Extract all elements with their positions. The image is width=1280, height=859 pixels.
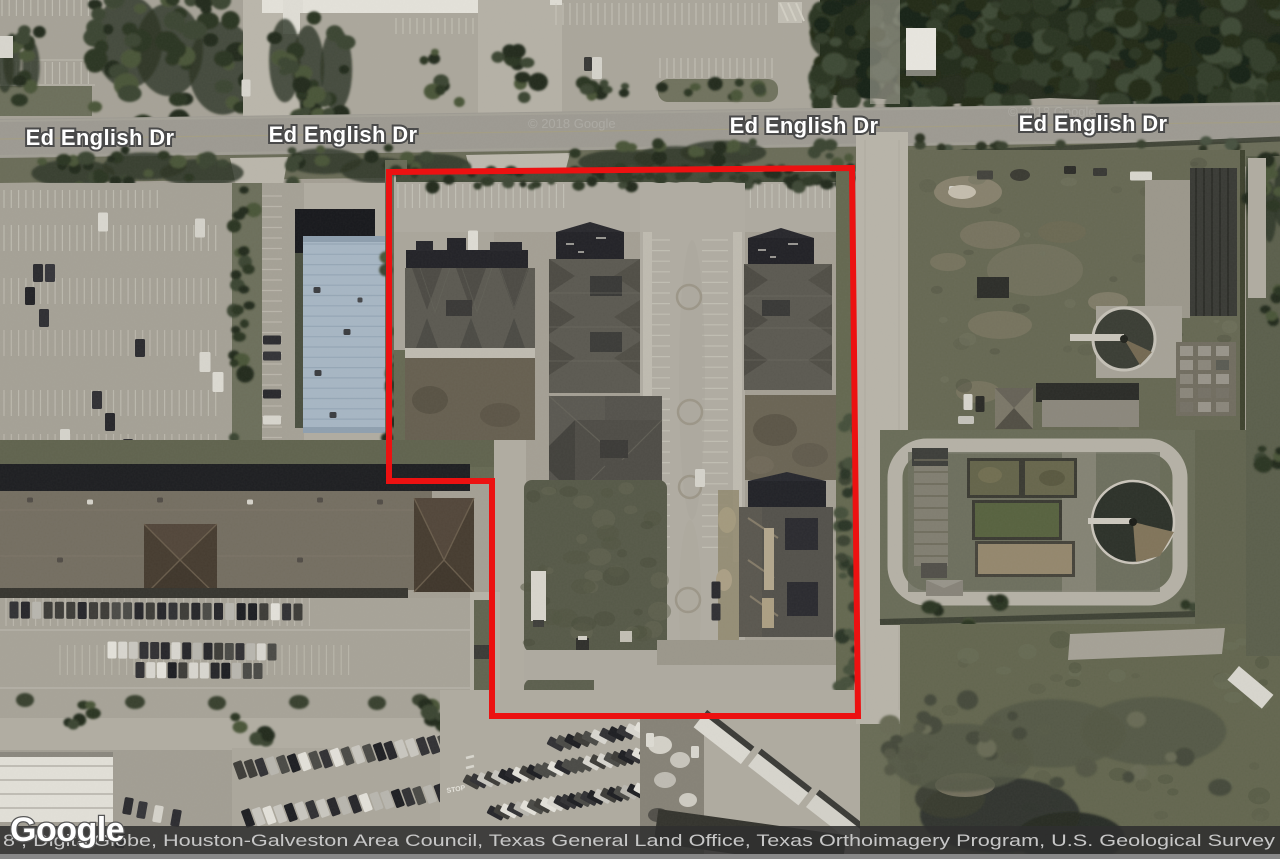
svg-text:© 2018 Google: © 2018 Google <box>528 116 616 131</box>
svg-text:8 , DigitalGlobe, Houston-Galv: 8 , DigitalGlobe, Houston-Galveston Area… <box>3 831 1276 850</box>
svg-text:Google: Google <box>10 811 124 849</box>
svg-text:Ed English Dr: Ed English Dr <box>26 125 175 150</box>
svg-text:Ed English Dr: Ed English Dr <box>1019 111 1168 136</box>
svg-text:Ed English Dr: Ed English Dr <box>269 122 418 147</box>
svg-text:Ed English Dr: Ed English Dr <box>730 113 879 138</box>
